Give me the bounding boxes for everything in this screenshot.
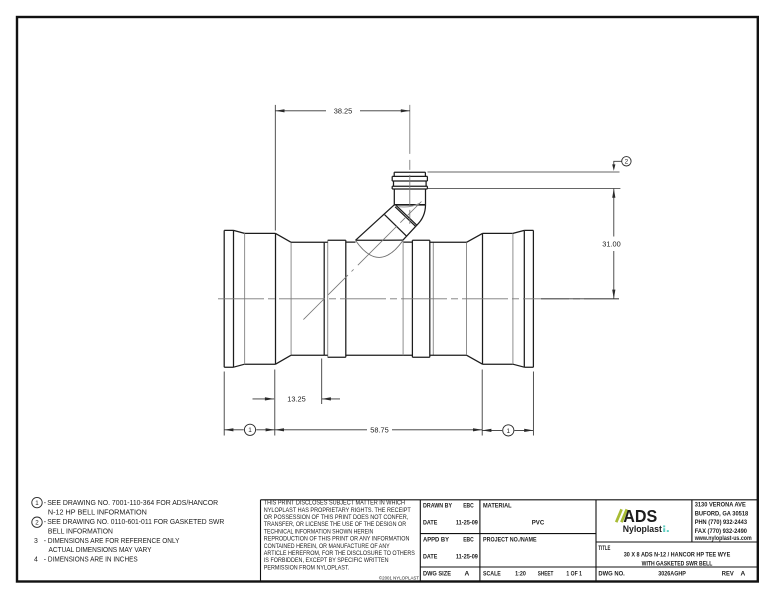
svg-text:13.25: 13.25	[287, 395, 306, 404]
svg-text:58.75: 58.75	[370, 425, 389, 434]
svg-text:REPRODUCTION OF THIS PRINT OR: REPRODUCTION OF THIS PRINT OR ANY INFORM…	[264, 536, 410, 543]
svg-text:1: 1	[35, 500, 39, 507]
svg-text:3: 3	[34, 538, 38, 545]
svg-text:BUFORD, GA 30518: BUFORD, GA 30518	[695, 510, 749, 517]
svg-text:BELL INFORMATION: BELL INFORMATION	[48, 528, 113, 535]
svg-text:THIS PRINT DISCLOSES SUBJECT M: THIS PRINT DISCLOSES SUBJECT MATTER IN W…	[264, 500, 405, 507]
svg-text:TITLE: TITLE	[598, 545, 610, 552]
svg-text:©2001 NYLOPLAST: ©2001 NYLOPLAST	[379, 575, 419, 580]
svg-text:3130 VERONA AVE: 3130 VERONA AVE	[695, 502, 747, 509]
svg-text:A: A	[465, 571, 470, 578]
svg-text:SCALE: SCALE	[483, 571, 501, 578]
svg-text:11-25-09: 11-25-09	[456, 519, 478, 526]
svg-text:3026AGHP: 3026AGHP	[658, 571, 686, 578]
svg-text:30 X 8 ADS N-12 / HANCOR HP TE: 30 X 8 ADS N-12 / HANCOR HP TEE WYE	[624, 552, 731, 559]
svg-text:SEE DRAWING NO. 7001-110-364 F: SEE DRAWING NO. 7001-110-364 FOR ADS/HAN…	[47, 500, 218, 507]
svg-text:2: 2	[35, 520, 39, 527]
svg-text:DWG SIZE: DWG SIZE	[423, 571, 452, 578]
svg-text:4: 4	[34, 556, 38, 563]
svg-text:DATE: DATE	[423, 519, 438, 526]
svg-text:FAX (770) 932-2490: FAX (770) 932-2490	[695, 528, 748, 535]
svg-text:PERMISSION FROM NYLOPLAST.: PERMISSION FROM NYLOPLAST.	[264, 564, 350, 571]
svg-text:PROJECT NO./NAME: PROJECT NO./NAME	[483, 536, 537, 543]
svg-text:38.25: 38.25	[334, 106, 353, 115]
svg-text:DIMENSIONS ARE IN INCHES: DIMENSIONS ARE IN INCHES	[48, 556, 138, 563]
svg-text:2: 2	[625, 159, 629, 166]
svg-text:-: -	[44, 519, 46, 526]
svg-text:11-25-09: 11-25-09	[456, 554, 478, 561]
svg-text:1: 1	[507, 428, 511, 435]
svg-text:MATERIAL: MATERIAL	[483, 503, 512, 510]
svg-text:PHN (770) 932-2443: PHN (770) 932-2443	[695, 519, 748, 526]
svg-text:REV: REV	[722, 571, 735, 578]
svg-text:DRAWN BY: DRAWN BY	[423, 503, 452, 510]
svg-text:N-12 HP BELL INFORMATION: N-12 HP BELL INFORMATION	[48, 509, 147, 516]
svg-text:1:20: 1:20	[515, 571, 526, 578]
svg-text:TRANSFER, OR LICENSE THE USE O: TRANSFER, OR LICENSE THE USE OF THE DESI…	[264, 521, 407, 528]
svg-text:EBC: EBC	[463, 503, 474, 510]
svg-text:CONTAINED HEREIN, OR MANUFACTU: CONTAINED HEREIN, OR MANUFACTURE OF ANY	[264, 543, 390, 550]
svg-text:APPD BY: APPD BY	[423, 536, 450, 543]
svg-text:ACTUAL DIMENSIONS MAY VARY: ACTUAL DIMENSIONS MAY VARY	[49, 547, 152, 554]
svg-text:www.nyloplast-us.com: www.nyloplast-us.com	[694, 536, 752, 542]
svg-text:-: -	[44, 538, 46, 545]
svg-text:PVC: PVC	[532, 519, 545, 526]
svg-text:SEE DRAWING NO. 0110-601-011 F: SEE DRAWING NO. 0110-601-011 FOR GASKETE…	[47, 519, 224, 526]
svg-text:-: -	[44, 556, 46, 563]
svg-text:WITH GASKETED SWR BELL: WITH GASKETED SWR BELL	[642, 561, 713, 568]
svg-text:A: A	[741, 571, 746, 578]
svg-text:ARTICLE HEREFROM, FOR THE DISC: ARTICLE HEREFROM, FOR THE DISCLOSURE TO …	[264, 550, 415, 557]
svg-text:Nyloplast: Nyloplast	[623, 523, 662, 534]
svg-text:31.00: 31.00	[602, 239, 621, 248]
svg-text:1 OF 1: 1 OF 1	[566, 571, 582, 578]
svg-text:OR POSSESSION OF THIS PRINT DO: OR POSSESSION OF THIS PRINT DOES NOT CON…	[264, 514, 409, 521]
svg-text:IS FORBIDDEN, EXCEPT BY SPECIF: IS FORBIDDEN, EXCEPT BY SPECIFIC WRITTEN	[264, 557, 389, 564]
svg-text:1: 1	[248, 427, 252, 434]
svg-text:NYLOPLAST HAS PROPRIETARY RIGH: NYLOPLAST HAS PROPRIETARY RIGHTS. THE RE…	[264, 507, 411, 514]
svg-text:DWG NO.: DWG NO.	[598, 571, 625, 578]
svg-text:TECHNICAL INFORMATION SHOWN HE: TECHNICAL INFORMATION SHOWN HEREIN	[264, 528, 374, 535]
svg-text:-: -	[44, 500, 46, 507]
svg-text:DATE: DATE	[423, 554, 438, 561]
svg-text:SHEET: SHEET	[538, 571, 554, 578]
svg-text:EBC: EBC	[463, 536, 474, 543]
svg-text:DIMENSIONS ARE FOR REFERENCE O: DIMENSIONS ARE FOR REFERENCE ONLY	[48, 538, 180, 545]
